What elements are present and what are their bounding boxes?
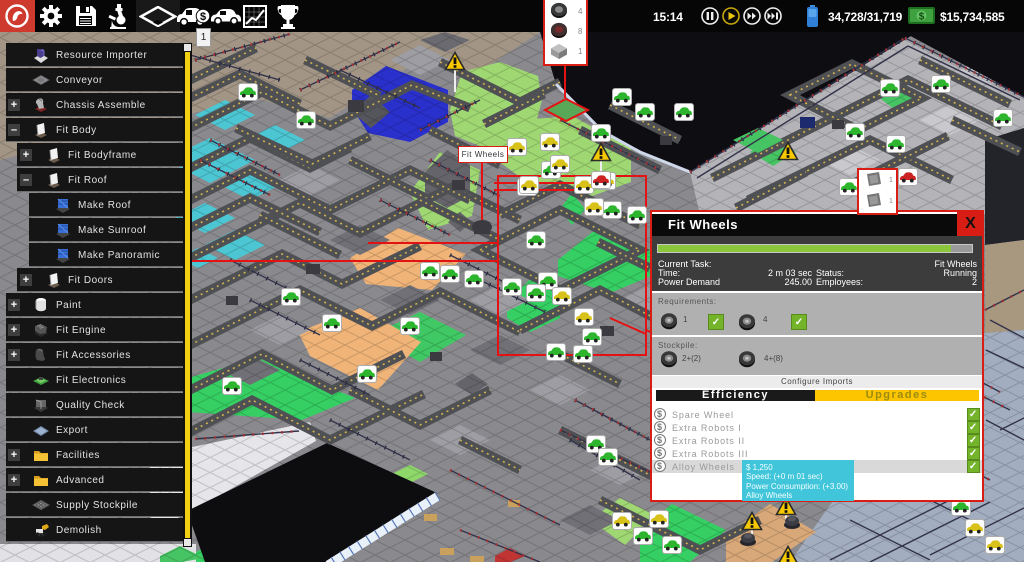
svg-text:1: 1 — [889, 198, 893, 205]
svg-text:$: $ — [200, 11, 206, 23]
svg-text:8: 8 — [578, 27, 583, 36]
svg-text:4: 4 — [578, 7, 583, 16]
svg-text:1: 1 — [889, 177, 893, 184]
svg-text:$: $ — [919, 12, 925, 23]
svg-text:1: 1 — [578, 47, 583, 56]
